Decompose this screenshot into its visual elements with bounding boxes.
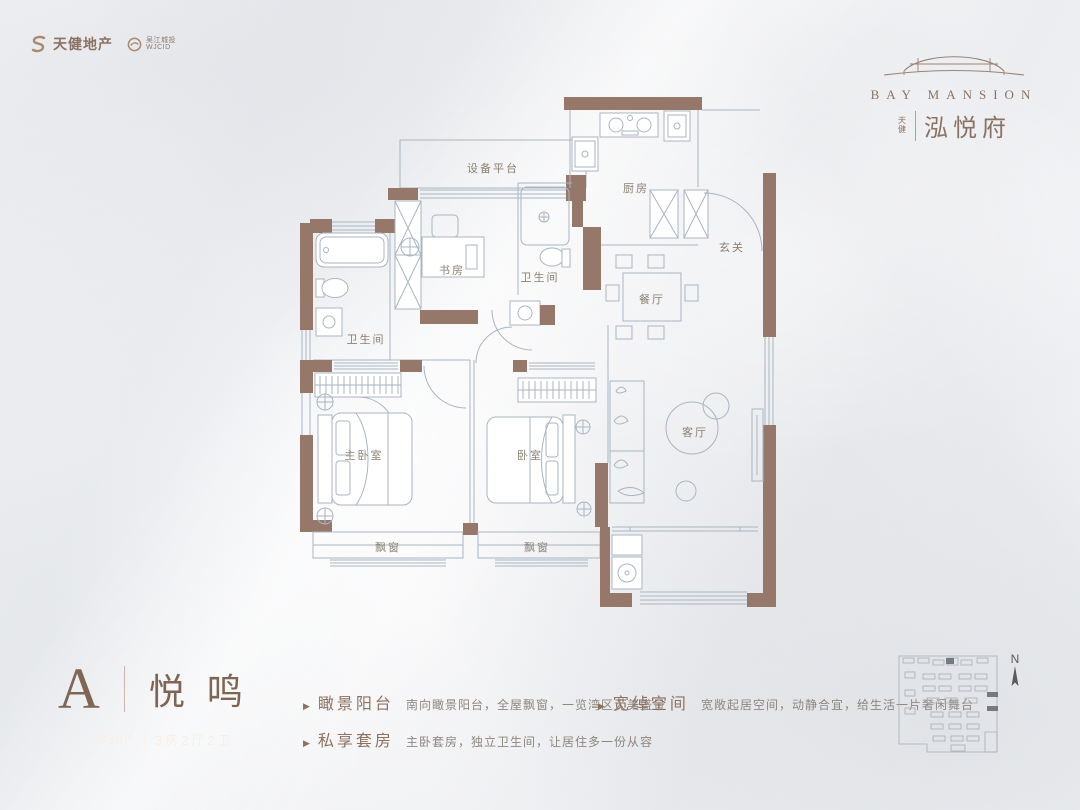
label-bay-window-left: 飘窗 (375, 540, 401, 554)
unit-type: A (58, 660, 100, 718)
label-dining: 餐厅 (639, 292, 665, 306)
room-equipment-platform: 设备平台 (388, 140, 586, 201)
layout-value: 3房2厅2卫 (155, 730, 234, 749)
brand-divider (915, 111, 916, 141)
label-living: 客厅 (682, 425, 708, 439)
area-prefix: 建面 (72, 732, 81, 747)
room-dining: 餐厅 (606, 255, 698, 339)
arch-logo-icon (874, 42, 1034, 80)
partner-logo-icon (127, 37, 142, 52)
room-study: 书房 (395, 201, 532, 350)
room-foyer: 玄关 (650, 190, 762, 254)
bay-window-right: 飘窗 (478, 532, 600, 566)
label-bedroom: 卧室 (517, 448, 543, 462)
label-equipment-platform: 设备平台 (467, 161, 519, 175)
corridor-walls (420, 310, 478, 324)
area-value: •103m² (83, 731, 134, 748)
feature-private-suite: ▶ 私享套房 主卧套房，独立卫生间，让居住多一份从容 (303, 727, 653, 751)
room-master-bedroom: 主卧室 (315, 360, 474, 532)
label-bathroom-left: 卫生间 (347, 332, 386, 346)
header-logos: 天健地产 吴江城投 WJCID (30, 34, 176, 54)
room-bedroom: 卧室 (487, 325, 608, 527)
unit-title-divider (124, 666, 125, 712)
wall-right (763, 173, 776, 607)
unit-title: A 悦鸣 (58, 660, 265, 718)
developer-logo-text: 天健地产 (53, 34, 113, 54)
badge-divider: | (143, 732, 146, 746)
feature-title: 瞰景阳台 (318, 690, 394, 714)
brand-chinese-row: 天健 泓悦府 (866, 108, 1042, 143)
label-foyer: 玄关 (719, 240, 745, 254)
feature-title: 宽绰空间 (613, 690, 689, 714)
compass-north-label: N (1004, 653, 1026, 665)
label-master-bedroom: 主卧室 (345, 448, 384, 462)
label-kitchen: 厨房 (623, 182, 649, 195)
room-bathroom-center: 卫生间 (510, 183, 572, 325)
label-bay-window-right: 飘窗 (524, 540, 550, 554)
triangle-bullet-icon: ▶ (303, 738, 310, 749)
feature-title: 私享套房 (318, 727, 394, 751)
partner-logo-text: 吴江城投 WJCID (146, 37, 176, 52)
site-plan-map (893, 648, 1005, 766)
triangle-bullet-icon: ▶ (598, 701, 605, 712)
brand-prefix: 天健 (897, 117, 907, 135)
triangle-bullet-icon: ▶ (303, 701, 310, 712)
developer-logo: 天健地产 (30, 34, 113, 54)
compass-arrow-icon (1008, 665, 1022, 689)
area-badge: 建面 •103m² | 3房2厅2卫 (58, 724, 258, 754)
brand-name: 泓悦府 (924, 108, 1011, 143)
feature-desc: 主卧套房，独立卫生间，让居住多一份从容 (406, 733, 653, 750)
bay-window-left: 飘窗 (313, 523, 478, 566)
label-bathroom-center: 卫生间 (521, 270, 560, 284)
unit-name: 悦鸣 (149, 663, 265, 715)
label-study: 书房 (439, 264, 465, 277)
compass: N (1004, 653, 1026, 694)
brand-english: BAY MANSION (866, 87, 1042, 103)
floor-plan: 设备平台 厨房 玄关 (300, 95, 780, 615)
partner-logo: 吴江城投 WJCID (127, 37, 176, 52)
developer-logo-icon (30, 35, 48, 53)
room-living: 客厅 (610, 381, 763, 503)
brand-block: BAY MANSION 天健 泓悦府 (866, 42, 1042, 143)
balcony (600, 527, 776, 607)
